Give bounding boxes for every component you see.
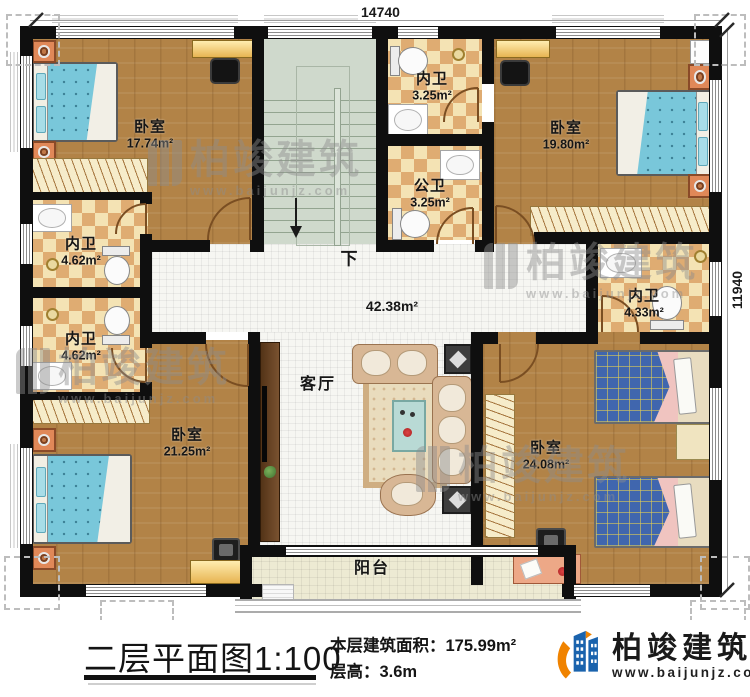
floor-area-label: 本层建筑面积： bbox=[330, 637, 446, 655]
wardrobe bbox=[32, 158, 148, 196]
single-bed bbox=[594, 350, 712, 424]
table-decor bbox=[403, 428, 412, 437]
sofa-cushion bbox=[438, 384, 466, 412]
wall bbox=[536, 332, 598, 344]
title-underline bbox=[84, 675, 316, 680]
plan-title: 二层平面图1:100 bbox=[84, 632, 342, 680]
window-sill-outline bbox=[100, 600, 174, 622]
pillow bbox=[698, 137, 708, 166]
wall bbox=[388, 134, 482, 146]
computer bbox=[212, 538, 240, 562]
dimension-line-top bbox=[30, 20, 722, 21]
wall bbox=[30, 192, 148, 200]
nightstand bbox=[32, 428, 56, 452]
sofa bbox=[432, 376, 472, 484]
room-label-public-bath: 公卫 3.25m² bbox=[410, 178, 450, 211]
ceiling-lamp-icon bbox=[46, 258, 59, 271]
sofa bbox=[352, 344, 438, 384]
logo-building-icon bbox=[552, 628, 604, 684]
ceiling-lamp-icon bbox=[46, 308, 59, 321]
sliding-door bbox=[286, 547, 538, 555]
side-table bbox=[444, 344, 472, 374]
logo-tower bbox=[574, 631, 586, 672]
pillow bbox=[36, 503, 46, 533]
desk bbox=[496, 40, 550, 58]
wall bbox=[30, 392, 148, 400]
room-label-bedroom-top-right: 卧室 19.80m² bbox=[543, 120, 590, 153]
hallway-floor bbox=[152, 244, 598, 332]
sofa-cushion bbox=[397, 350, 427, 376]
pillow bbox=[698, 102, 708, 131]
balcony-label: 阳台 bbox=[354, 554, 390, 578]
corner-eave-outline bbox=[4, 556, 60, 610]
window-sill bbox=[10, 52, 19, 152]
window bbox=[21, 326, 32, 366]
toilet-tank bbox=[650, 320, 684, 330]
nightstand bbox=[676, 424, 710, 460]
side-table bbox=[442, 486, 472, 514]
floor-stats: 本层建筑面积：175.99m² 层高：3.6m bbox=[330, 634, 516, 685]
window bbox=[710, 80, 721, 192]
dimension-right-value: 11940 bbox=[729, 257, 745, 323]
sofa-cushion bbox=[361, 350, 391, 376]
window bbox=[710, 262, 721, 316]
floor-height-value: 3.6m bbox=[380, 663, 418, 681]
sofa-cushion bbox=[438, 448, 466, 476]
wall bbox=[534, 232, 718, 244]
toilet bbox=[400, 210, 430, 238]
tv bbox=[262, 386, 267, 462]
company-logo: 柏竣建筑 www.baijunjz.com bbox=[552, 628, 750, 684]
plan-title-text: 二层平面图 bbox=[84, 640, 254, 677]
wall bbox=[248, 332, 260, 557]
title-underline-shadow bbox=[88, 683, 316, 685]
toilet-tank bbox=[102, 246, 130, 256]
window bbox=[710, 388, 721, 480]
floor-height-line: 层高：3.6m bbox=[330, 660, 516, 686]
footer: 二层平面图1:100 本层建筑面积：175.99m² 层高：3.6m bbox=[0, 620, 750, 697]
wall bbox=[376, 240, 434, 252]
desk-chair bbox=[500, 60, 530, 86]
floor-area-value: 175.99m² bbox=[446, 637, 517, 655]
wall bbox=[140, 192, 152, 204]
window bbox=[556, 27, 660, 38]
table-decor bbox=[410, 412, 415, 417]
corner-eave-outline bbox=[6, 14, 60, 66]
window bbox=[21, 448, 32, 544]
stairs-down-label: 下 bbox=[341, 245, 358, 270]
double-bed bbox=[616, 90, 712, 176]
corner-eave-outline bbox=[694, 14, 746, 66]
wall bbox=[140, 332, 206, 344]
sink bbox=[600, 248, 642, 278]
stair-handrail bbox=[334, 88, 341, 246]
wall bbox=[482, 122, 494, 138]
logo-swoosh bbox=[558, 641, 571, 678]
window bbox=[398, 27, 438, 38]
window-sill-outline bbox=[690, 600, 746, 622]
paper bbox=[520, 558, 542, 579]
window bbox=[21, 56, 32, 148]
window-sill bbox=[10, 444, 19, 548]
desk-chair bbox=[210, 58, 240, 84]
wall bbox=[640, 332, 718, 344]
window bbox=[574, 585, 650, 596]
room-label-ensuite-right: 内卫 4.33m² bbox=[624, 288, 664, 321]
window bbox=[56, 27, 234, 38]
room-label-bedroom-top-left: 卧室 17.74m² bbox=[127, 119, 174, 152]
pillow bbox=[36, 106, 46, 133]
wardrobe bbox=[485, 394, 515, 538]
double-bed bbox=[32, 62, 118, 142]
living-room-name-label: 客厅 bbox=[300, 370, 336, 394]
sink bbox=[32, 362, 72, 390]
toilet-tank bbox=[102, 335, 130, 345]
floor-plan-page: 14740 11940 卧室 17.74m² 内卫 bbox=[0, 0, 750, 697]
company-url: www.baijunjz.com bbox=[612, 665, 750, 680]
ceiling-lamp-icon bbox=[452, 48, 465, 61]
table-decor bbox=[400, 410, 405, 415]
sink bbox=[440, 150, 480, 180]
armchair bbox=[380, 474, 436, 516]
pillow bbox=[36, 73, 46, 100]
company-name: 柏竣建筑 bbox=[612, 632, 750, 665]
wall bbox=[240, 545, 252, 605]
sink bbox=[388, 104, 428, 136]
toilet bbox=[104, 306, 130, 335]
room-label-bedroom-bottom-left: 卧室 21.25m² bbox=[164, 427, 211, 460]
toilet bbox=[104, 256, 130, 285]
wall bbox=[586, 244, 598, 332]
room-label-ensuite-left-upper: 内卫 4.62m² bbox=[61, 236, 101, 269]
sofa-cushion bbox=[391, 482, 423, 506]
double-bed bbox=[32, 454, 132, 544]
floor-height-label: 层高： bbox=[330, 663, 380, 681]
window bbox=[268, 27, 372, 38]
wall bbox=[475, 240, 494, 252]
logo-flag bbox=[586, 631, 592, 639]
room-label-bedroom-bottom-right: 卧室 24.08m² bbox=[523, 440, 570, 473]
wall bbox=[250, 240, 264, 252]
coffee-table bbox=[392, 400, 426, 452]
sofa-cushion bbox=[438, 416, 466, 444]
room-label-ensuite-left-lower: 内卫 4.62m² bbox=[61, 331, 101, 364]
single-bed bbox=[594, 476, 712, 548]
dimension-line-right bbox=[727, 30, 728, 590]
wall bbox=[376, 26, 388, 252]
wall bbox=[252, 26, 264, 252]
window bbox=[86, 585, 206, 596]
wardrobe bbox=[32, 398, 150, 424]
wall bbox=[30, 287, 148, 298]
wall bbox=[564, 545, 576, 605]
floor-area-line: 本层建筑面积：175.99m² bbox=[330, 634, 516, 660]
balcony-railing bbox=[235, 599, 581, 614]
sink bbox=[32, 204, 72, 232]
window bbox=[21, 224, 32, 264]
living-room-area-label: 42.38m² bbox=[366, 298, 418, 314]
wall bbox=[482, 138, 494, 252]
plan-scale: 1:100 bbox=[254, 640, 342, 677]
dimension-top-value: 14740 bbox=[358, 4, 403, 20]
desk bbox=[192, 40, 254, 58]
wall bbox=[148, 240, 210, 252]
stair-landing-outline bbox=[296, 66, 350, 246]
ceiling-lamp-icon bbox=[694, 250, 707, 263]
room-label-ensuite-top: 内卫 3.25m² bbox=[412, 71, 452, 104]
pillow bbox=[36, 467, 46, 497]
wall bbox=[482, 26, 494, 84]
